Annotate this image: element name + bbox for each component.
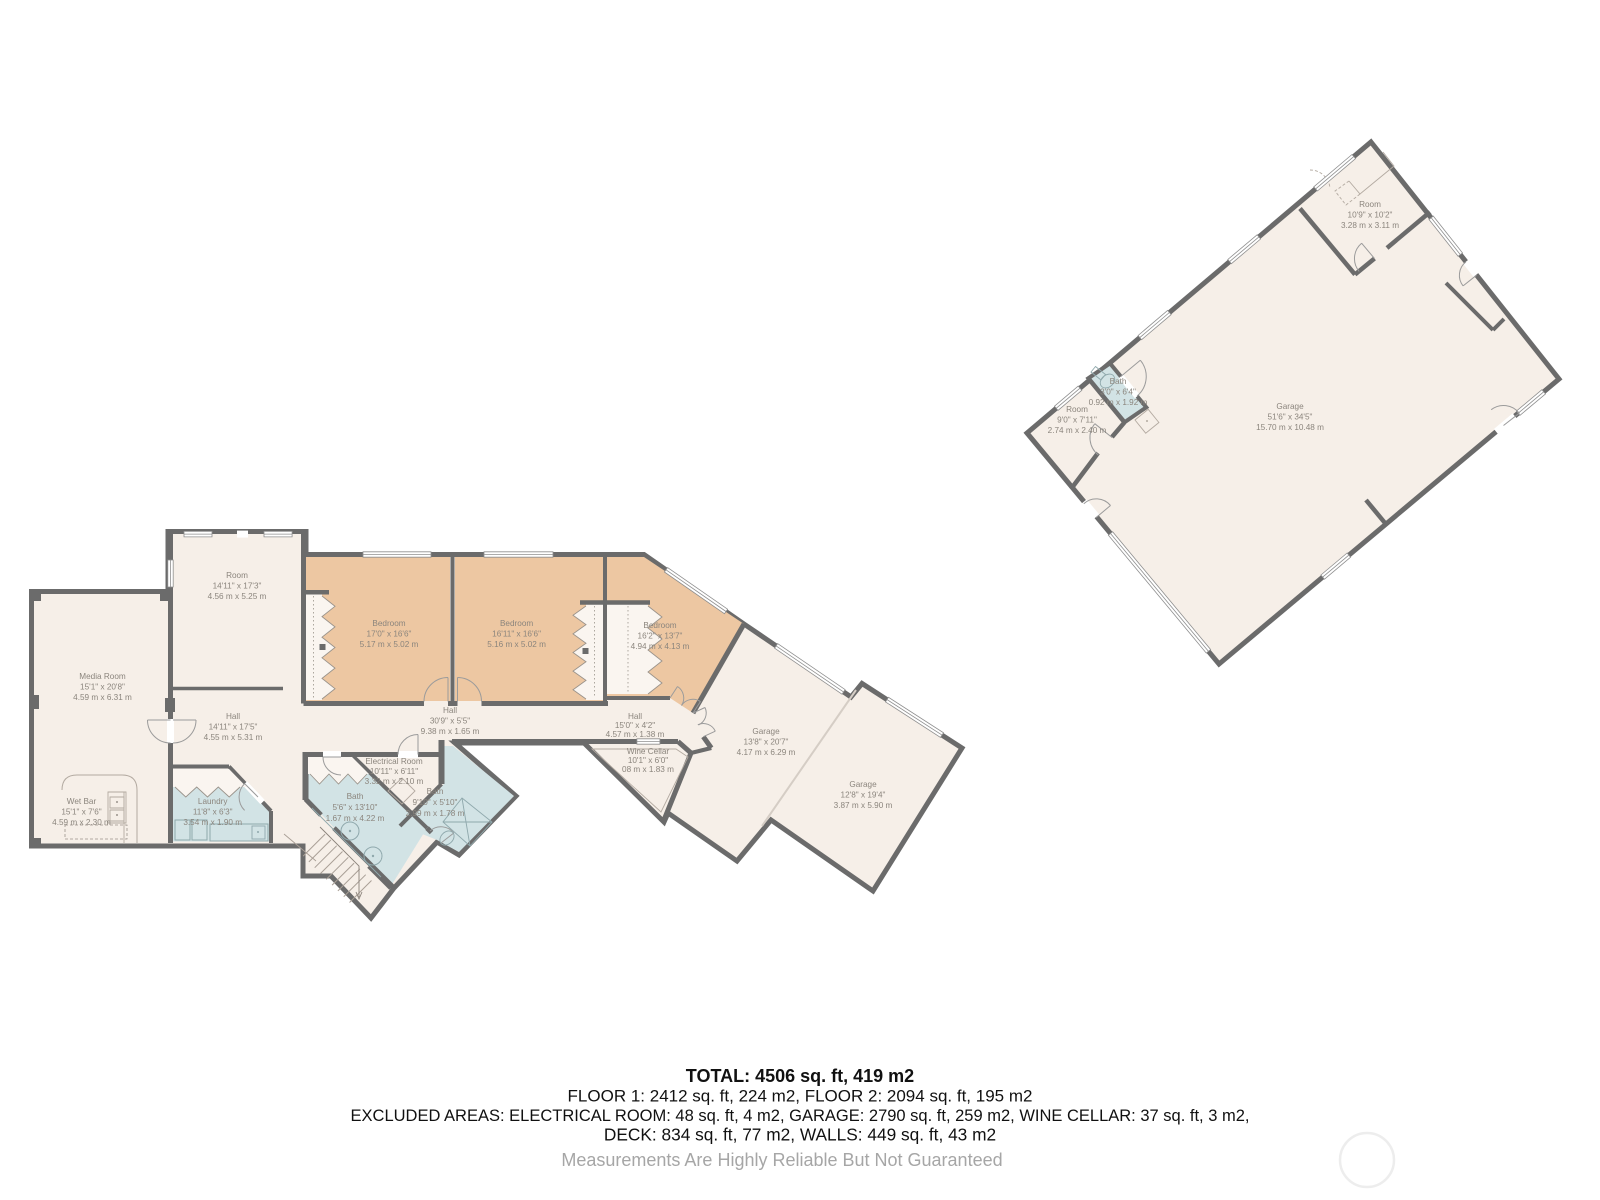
svg-text:DECK: 834 sq. ft, 77 m2, WALLS: DECK: 834 sq. ft, 77 m2, WALLS: 449 sq. … [604, 1125, 996, 1145]
svg-text:FLOOR 1: 2412 sq. ft, 224 m2,: FLOOR 1: 2412 sq. ft, 224 m2, FLOOR 2: 2… [568, 1087, 1033, 1106]
svg-text:TOTAL: 4506 sq. ft, 419 m2: TOTAL: 4506 sq. ft, 419 m2 [686, 1066, 914, 1086]
svg-text:EXCLUDED AREAS: ELECTRICAL ROO: EXCLUDED AREAS: ELECTRICAL ROOM: 48 sq. … [351, 1107, 1250, 1125]
svg-text:Measurements Are Highly Reliab: Measurements Are Highly Reliable But Not… [561, 1150, 1002, 1170]
svg-text:Wine Cellar10'1" x 6'0"08 m x: Wine Cellar10'1" x 6'0"08 m x 1.83 m [622, 747, 674, 774]
svg-text:Media Room15'1" x 20'8"4.59 m: Media Room15'1" x 20'8"4.59 m x 6.31 m [73, 672, 132, 702]
svg-text:Electrical Room10'11" x 6'11"3: Electrical Room10'11" x 6'11"3.32 m x 2.… [365, 757, 424, 786]
